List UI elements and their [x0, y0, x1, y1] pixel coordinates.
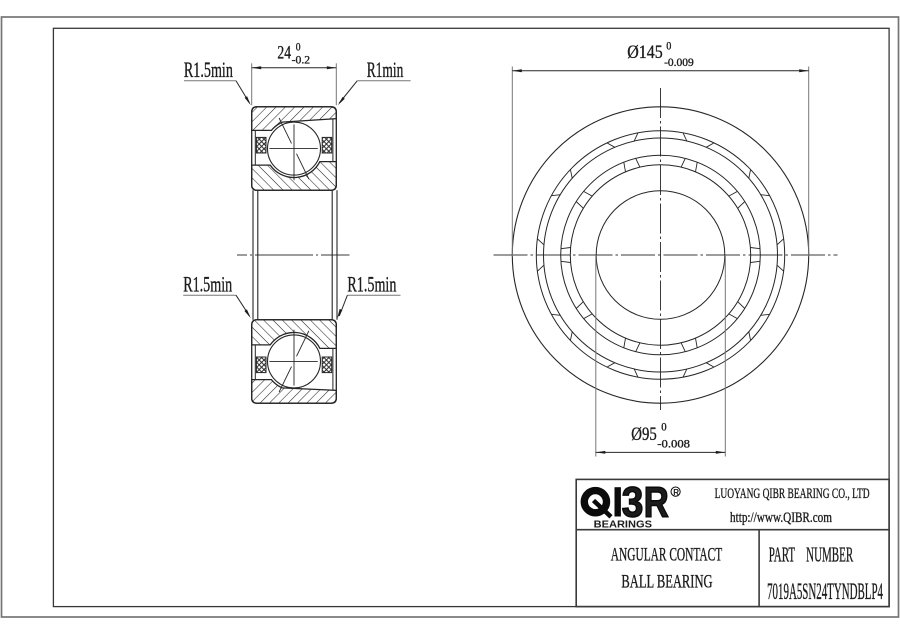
svg-text:R1.5min: R1.5min — [183, 272, 232, 297]
svg-text:R: R — [673, 488, 679, 497]
svg-text:ANGULAR CONTACT: ANGULAR CONTACT — [611, 545, 723, 566]
svg-text:http://www.QIBR.com: http://www.QIBR.com — [730, 510, 832, 526]
svg-text:0: 0 — [661, 422, 667, 434]
svg-text:BEARINGS: BEARINGS — [594, 519, 652, 531]
svg-text:-0.009: -0.009 — [664, 57, 694, 69]
svg-text:-0.2: -0.2 — [292, 55, 311, 67]
svg-text:24: 24 — [277, 42, 291, 63]
svg-text:R1.5min: R1.5min — [347, 272, 396, 297]
svg-text:BALL BEARING: BALL BEARING — [621, 571, 712, 592]
svg-text:Ø95: Ø95 — [631, 424, 656, 445]
svg-text:-0.008: -0.008 — [657, 439, 690, 451]
svg-text:0: 0 — [666, 41, 671, 53]
svg-text:PART NUMBER: PART NUMBER — [769, 542, 854, 566]
svg-text:LUOYANG QIBR BEARING CO., LTD: LUOYANG QIBR BEARING CO., LTD — [715, 486, 870, 502]
svg-text:R1.5min: R1.5min — [184, 57, 233, 82]
svg-text:0: 0 — [296, 42, 301, 54]
svg-text:Ø145: Ø145 — [627, 42, 662, 63]
svg-text:7019A5SN24TYNDBLP4: 7019A5SN24TYNDBLP4 — [767, 579, 883, 604]
svg-text:R1min: R1min — [367, 57, 404, 82]
